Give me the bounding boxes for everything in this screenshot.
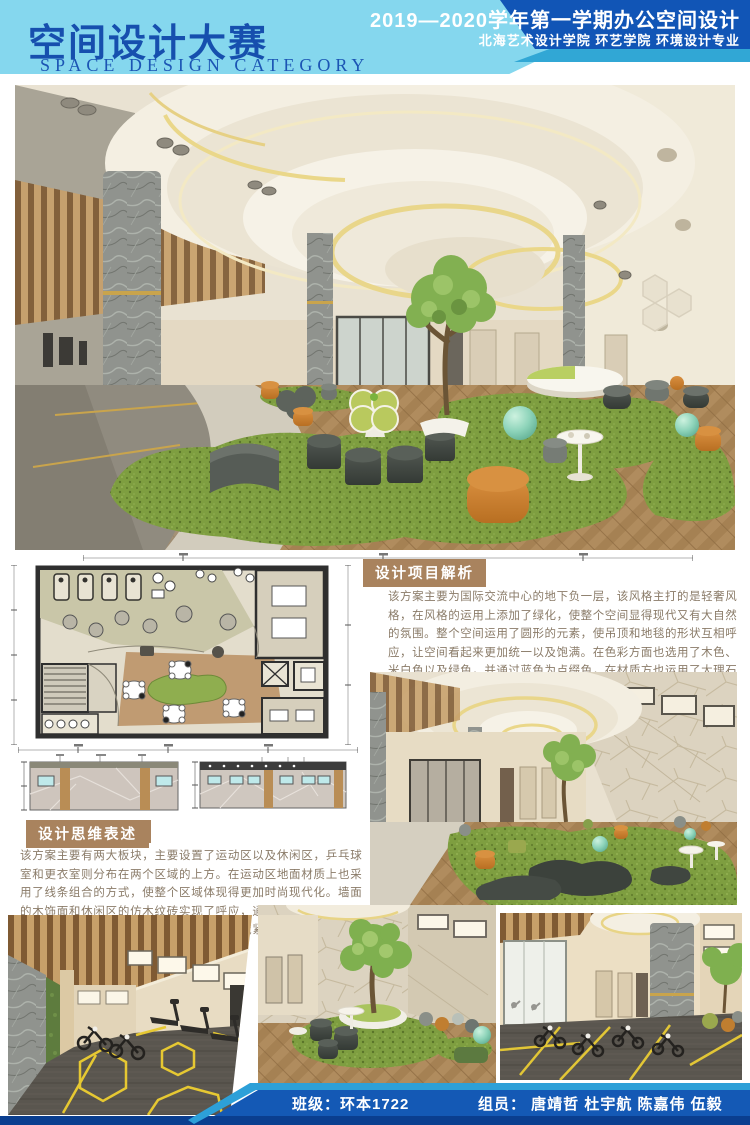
header-teal-stripe <box>514 49 750 62</box>
lobby-render-image <box>370 672 737 905</box>
poster-page: 空间设计大赛 SPACE DESIGN CATEGORY 2019—2020学年… <box>0 0 750 1125</box>
elevation-drawing-right <box>192 756 352 814</box>
section-heading-design-thinking: 设计思维表述 <box>26 820 149 848</box>
header-white-stripe <box>505 62 750 76</box>
poster-subtitle: SPACE DESIGN CATEGORY <box>40 55 369 76</box>
section-heading-bar <box>478 559 483 582</box>
footer-members-label: 组员： 唐靖哲 杜宇航 陈嘉伟 伍毅 <box>478 1093 723 1114</box>
footer-class-label: 班级：环本1722 <box>292 1093 409 1114</box>
gym-render-right-image <box>500 913 742 1080</box>
elevation-drawing-left <box>20 754 182 816</box>
project-analysis-text: 该方案主要为国际交流中心的地下负一层，该风格主打的是轻奢风格，在风格的运用上添加… <box>388 588 737 668</box>
hero-render-image <box>15 85 735 550</box>
course-title: 2019—2020学年第一学期办公空间设计 <box>320 4 740 33</box>
institution-line: 北海艺术设计学院 环艺学院 环境设计专业 <box>320 30 740 49</box>
section-heading-bar-2 <box>146 820 151 843</box>
plan-dimension-line-left <box>10 565 18 745</box>
section-heading-project-analysis: 设计项目解析 <box>363 559 486 587</box>
lounge-render-middle-image <box>258 905 496 1085</box>
plan-dimension-line-right <box>344 565 352 745</box>
design-thinking-text: 该方案主要有两大板块，主要设置了运动区以及休闲区，乒乓球室和更衣室则分布在两个区… <box>20 847 362 907</box>
floor-plan <box>22 560 342 746</box>
